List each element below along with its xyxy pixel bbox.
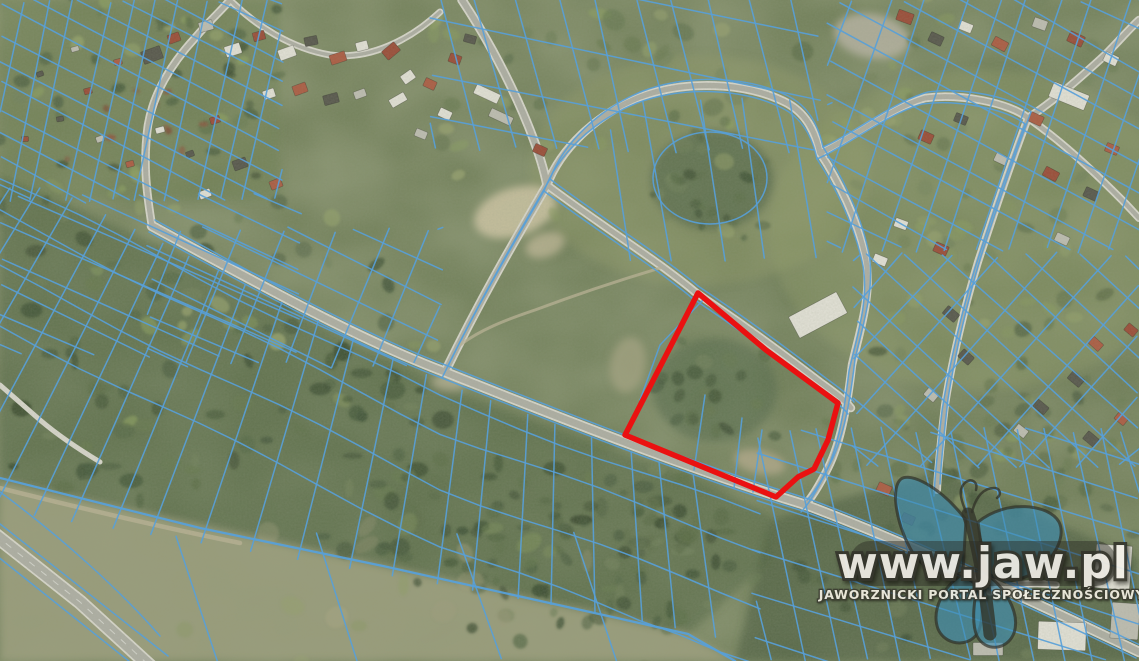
aerial-map-image: www.jaw.pl JAWORZNICKI PORTAL SPOŁECZNOŚ… — [0, 0, 1139, 661]
watermark-site-text: www.jaw.pl — [837, 538, 1129, 589]
map-viewport[interactable]: www.jaw.pl JAWORZNICKI PORTAL SPOŁECZNOŚ… — [0, 0, 1139, 661]
watermark-tagline-text: JAWORZNICKI PORTAL SPOŁECZNOŚCIOWY — [818, 587, 1139, 602]
